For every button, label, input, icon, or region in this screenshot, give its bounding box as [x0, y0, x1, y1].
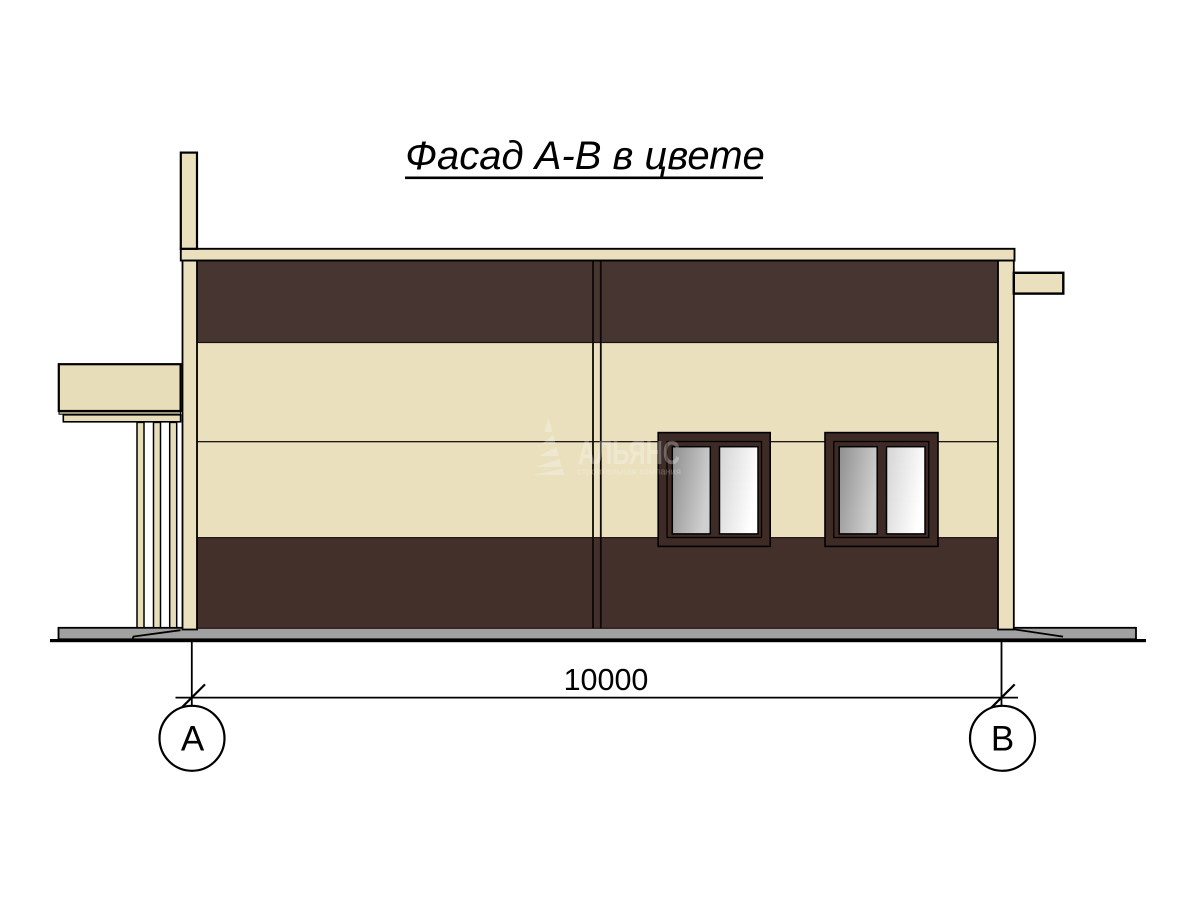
svg-text:строительная компания: строительная компания: [577, 467, 681, 478]
svg-text:А: А: [181, 720, 205, 759]
svg-text:В: В: [991, 720, 1014, 759]
svg-text:10000: 10000: [564, 663, 649, 697]
svg-text:АЛЬЯНС: АЛЬЯНС: [578, 434, 680, 471]
svg-text:Фасад А-В в цвете: Фасад А-В в цвете: [405, 134, 765, 178]
